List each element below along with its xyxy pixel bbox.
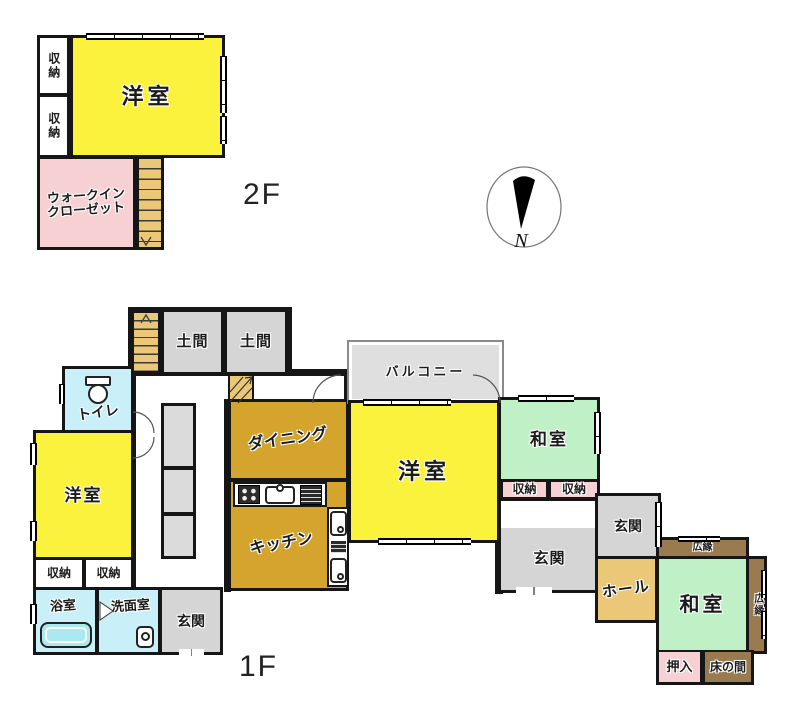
room-label: 収納 xyxy=(47,112,60,140)
window-toilet-left xyxy=(59,384,65,404)
room-label: 押入 xyxy=(666,660,692,674)
room-label: 収納 xyxy=(47,567,71,580)
refrigerator-icon xyxy=(330,558,347,583)
stove-icon xyxy=(238,485,260,504)
room-storage-west-a: 収納 xyxy=(33,557,85,590)
window-veranda-right-b xyxy=(761,611,767,639)
stairs-1f xyxy=(131,310,161,374)
room-toilet: トイレ xyxy=(62,366,134,436)
room-label: 収納 xyxy=(512,483,536,496)
closet-block-3 xyxy=(161,513,196,559)
room-western-room-center: 洋室 xyxy=(348,400,500,543)
room-label: 玄関 xyxy=(533,551,565,567)
room-washroom: 洗面室 xyxy=(96,587,161,655)
room-label: 土間 xyxy=(176,334,208,350)
window-west-room-left-a xyxy=(30,443,37,465)
room-storage-northeast-a: 収納 xyxy=(500,479,549,500)
room-label: 収納 xyxy=(96,567,120,580)
refrigerator-icon xyxy=(330,511,347,536)
room-label: 洗面室 xyxy=(111,598,151,614)
room-label: 和室 xyxy=(530,431,568,449)
window-entrance-east-right xyxy=(655,502,662,547)
kitchen-appliance-nook xyxy=(327,507,349,587)
room-label: 玄関 xyxy=(614,519,642,534)
room-label: バルコニー xyxy=(386,365,466,379)
room-storage-northeast-b: 収納 xyxy=(548,479,600,500)
window-center-top xyxy=(363,399,451,406)
room-label: トイレ xyxy=(76,402,120,422)
room-japanese-room-northeast: 和室 xyxy=(498,397,600,482)
stairs-2f xyxy=(136,156,164,250)
room-label: 収納 xyxy=(562,483,586,496)
washbasin-icon xyxy=(136,626,154,648)
room-label: 洋室 xyxy=(121,85,173,108)
compass-letter: N xyxy=(513,230,529,252)
room-bathroom: 浴室 xyxy=(33,587,98,655)
room-label: 収納 xyxy=(47,52,60,80)
room-doma-2: 土間 xyxy=(224,309,288,375)
door-entrance-main xyxy=(516,587,552,595)
room-western-room-west: 洋室 xyxy=(33,430,134,561)
floor-2f-label: 2F xyxy=(243,178,282,212)
closet-block-1 xyxy=(161,403,196,469)
window-2f-right-b xyxy=(220,116,227,144)
room-2f-storage-top: 収納 xyxy=(37,35,70,96)
entrance-main-floor: 玄関 xyxy=(501,528,598,590)
room-japanese-room-southeast: 和室 xyxy=(656,556,749,653)
kitchen-counter xyxy=(233,482,327,507)
room-entrance-southwest: 玄関 xyxy=(159,587,223,655)
room-label: 玄関 xyxy=(177,614,205,629)
room-label: 和室 xyxy=(680,595,726,616)
room-label: ホール xyxy=(602,578,652,600)
balcony: バルコニー xyxy=(347,340,504,404)
room-doma-1: 土間 xyxy=(161,309,224,375)
room-2f-western-room: 洋室 xyxy=(70,35,225,158)
compass: N xyxy=(487,167,561,252)
closet-block-2 xyxy=(161,467,196,515)
window-washitsu-ne-top xyxy=(518,395,574,402)
room-label: 洋室 xyxy=(65,487,103,505)
window-2f-top xyxy=(86,33,204,40)
door-arc-toilet xyxy=(133,412,154,458)
window-veranda-top xyxy=(678,536,720,542)
floor-plan-canvas: 収納 収納 洋室 ウォークイン クローゼット 2F 土間 xyxy=(0,0,800,715)
room-label: ダイニング xyxy=(248,426,330,454)
room-label: 広縁 xyxy=(693,543,713,554)
room-oshiire-closet: 押入 xyxy=(656,650,703,685)
toilet-icon xyxy=(84,376,112,404)
room-label: キッチン xyxy=(249,530,315,558)
window-west-room-left-b xyxy=(30,521,37,541)
room-label: 土間 xyxy=(240,334,272,350)
window-2f-right-a xyxy=(220,56,227,113)
room-hall: ホール xyxy=(595,556,658,623)
window-washitsu-ne-right xyxy=(594,412,601,454)
window-veranda-right-a xyxy=(761,570,767,598)
room-2f-walk-in-closet: ウォークイン クローゼット xyxy=(37,156,136,250)
room-dining: ダイニング xyxy=(228,399,349,481)
compass-needle xyxy=(513,176,535,229)
room-storage-west-b: 収納 xyxy=(83,557,134,590)
room-tokonoma-alcove: 床の間 xyxy=(702,650,754,685)
floor-1f-label: 1F xyxy=(239,650,278,684)
room-entrance-east: 玄関 xyxy=(595,493,661,559)
room-label-line2: クローゼット xyxy=(47,200,126,219)
room-label: 床の間 xyxy=(710,661,746,674)
window-center-bottom xyxy=(378,538,471,545)
bathtub-icon xyxy=(40,622,92,648)
cooktop-icon xyxy=(300,485,322,505)
kitchen-sink-icon xyxy=(265,486,295,504)
room-label: 洋室 xyxy=(398,460,450,483)
door-entrance-southwest xyxy=(179,649,204,656)
room-entrance-main: 玄関 xyxy=(498,498,601,593)
room-label: 浴室 xyxy=(50,598,77,613)
window-bath-left xyxy=(30,604,37,624)
appliance-icon xyxy=(331,541,346,553)
room-2f-storage-bottom: 収納 xyxy=(37,94,70,158)
